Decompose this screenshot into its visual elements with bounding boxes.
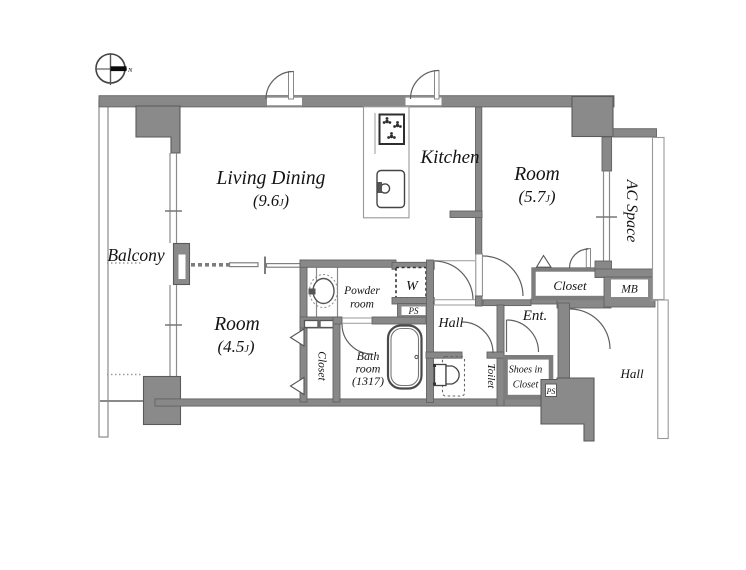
svg-text:Closet: Closet [553, 278, 587, 293]
svg-text:Shoes in: Shoes in [509, 365, 543, 376]
svg-text:Kitchen: Kitchen [419, 147, 479, 168]
svg-text:PS: PS [408, 306, 419, 316]
svg-text:Closet: Closet [513, 380, 539, 391]
svg-text:(4.5J): (4.5J) [217, 337, 254, 356]
svg-text:Room: Room [513, 164, 560, 185]
svg-text:(5.7J): (5.7J) [518, 187, 555, 206]
svg-text:Powder: Powder [343, 285, 380, 297]
svg-text:Living Dining: Living Dining [216, 168, 326, 189]
svg-text:Balcony: Balcony [107, 245, 165, 265]
svg-text:Hall: Hall [438, 316, 464, 331]
svg-text:MB: MB [620, 284, 638, 296]
svg-text:W: W [406, 279, 419, 294]
svg-text:room: room [350, 299, 374, 311]
svg-text:(1317): (1317) [352, 374, 384, 388]
svg-text:N: N [127, 67, 133, 74]
svg-text:(9.6J): (9.6J) [253, 191, 289, 210]
svg-text:Toilet: Toilet [485, 364, 497, 390]
svg-text:Ent.: Ent. [522, 308, 548, 324]
svg-text:Closet: Closet [316, 351, 328, 381]
svg-text:PS: PS [546, 387, 556, 396]
svg-text:Hall: Hall [619, 366, 644, 381]
svg-text:AC Space: AC Space [623, 179, 640, 243]
svg-text:Room: Room [213, 314, 260, 335]
